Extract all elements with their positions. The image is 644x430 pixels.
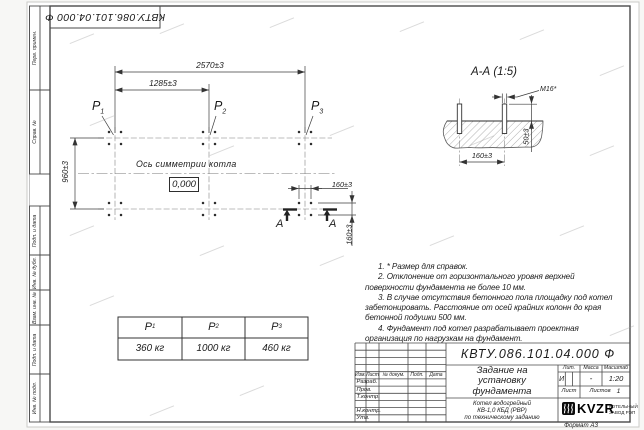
margin-label-inv-podl: Инв. № подл. <box>30 374 41 422</box>
sheets-label: Листов <box>590 389 611 395</box>
note-1: 1. * Размер для справок. <box>365 262 621 272</box>
dim-bolt-y-label: 160±3 <box>345 217 352 253</box>
margin-label-text: Инв. № подл. <box>32 382 38 414</box>
table-header-sub: 1 <box>152 324 155 330</box>
row-label-tkontr: Т.контр. <box>357 395 380 401</box>
notes-block: 1. * Размер для справок. 2. Отклонение о… <box>365 262 621 344</box>
dim-half-label: 1285±3 <box>141 79 185 87</box>
section-letter-right: А <box>329 219 336 230</box>
symmetry-axis-label: Ось симметрии котла <box>136 160 237 169</box>
margin-label-text: Подп. и дата <box>32 214 38 246</box>
col-header-list: Лист <box>366 372 379 379</box>
sheets-value: 1 <box>617 389 621 396</box>
col-header-data: Дата <box>426 372 446 379</box>
load-label-p1: P1 <box>92 100 104 116</box>
mass-header: Масса <box>580 365 602 372</box>
col-header-ndoc: № докум. <box>379 372 408 379</box>
margin-label-text: Подп. и дата <box>32 333 38 365</box>
note-3: 3. В случае отсутствия бетонного пола пл… <box>365 293 621 324</box>
margin-label-text: Взам. инв. № <box>32 291 38 323</box>
row-label-prov: Пров. <box>357 388 372 394</box>
load-label-p3: P3 <box>311 100 323 116</box>
table-header-sub: 2 <box>215 324 218 330</box>
margin-label-text: Инв. № дубл. <box>32 257 38 289</box>
load-table-value-p3: 460 кг <box>245 338 308 360</box>
row-label-razrab: Разраб. <box>357 380 378 386</box>
load-table-value-p1: 360 кг <box>118 338 182 360</box>
margin-label-text: Перв. примен. <box>32 31 38 65</box>
load-table-header-p2: P2 <box>182 317 245 338</box>
load-table-header-p3: P3 <box>245 317 308 338</box>
load-label-sub: 3 <box>319 109 323 116</box>
scale-header: Масштаб <box>602 365 630 372</box>
table-header-base: P <box>271 322 278 333</box>
col-header-podp: Подп. <box>408 372 426 379</box>
kvzr-logo-sub1: КОТЕЛЬНЫЙ <box>609 405 638 410</box>
title-line: фундамента <box>473 387 532 398</box>
note-4: 4. Фундамент под котел разрабатывает про… <box>365 324 621 345</box>
margin-label-vzam-inv: Взам. инв. № <box>30 290 41 325</box>
load-label-p2: P2 <box>214 100 226 116</box>
row-label-utv: Утв. <box>357 416 370 422</box>
kvzr-logo-emblem <box>562 402 575 415</box>
drawing-sheet: КВТУ.086.101.04.000 Ф Перв. примен. Спра… <box>0 0 644 430</box>
lit-value: И <box>558 372 565 386</box>
margin-label-text: Справ. № <box>32 120 38 144</box>
dim-bolt-x-label: 160±3 <box>324 181 360 188</box>
load-table-value-p2: 1000 кг <box>182 338 245 360</box>
table-header-sub: 3 <box>278 324 281 330</box>
row-label-nkontr: Н.контр. <box>357 409 382 415</box>
margin-label-podp-data-1: Подп. и дата <box>30 206 41 255</box>
section-height-label: 50±3 <box>522 119 529 155</box>
scale-value: 1:20 <box>602 372 630 386</box>
title-block-title: Задание на установку фундамента <box>446 365 558 398</box>
col-header-izm: Изм. <box>355 372 366 379</box>
kvzr-logo-sub2: ЗАВОД РЭП <box>609 411 635 416</box>
title-block-doc-number: КВТУ.086.101.04.000 Ф <box>446 343 630 365</box>
doc-number-stamp: КВТУ.086.101.04.000 Ф <box>50 6 160 28</box>
product-line: по техническому заданию <box>464 414 539 421</box>
product-line: КВ-1,0 КБД (РВР) <box>477 407 527 414</box>
margin-label-sprav-no: Справ. № <box>30 90 41 174</box>
load-label-sub: 1 <box>100 109 104 116</box>
section-view-title: А-А (1:5) <box>455 67 533 79</box>
dim-overall-label: 2570±3 <box>188 61 232 69</box>
load-label-sub: 2 <box>222 109 226 116</box>
margin-label-podp-data-2: Подп. и дата <box>30 325 41 374</box>
margin-label-inv-dubl: Инв. № дубл. <box>30 255 41 290</box>
product-line: Котел водогрейный <box>473 400 531 407</box>
level-mark: 0,000 <box>169 177 199 192</box>
mass-value: - <box>580 372 602 386</box>
format-label: Формат А3 <box>546 423 616 430</box>
lit-header: Лит. <box>558 365 580 372</box>
sheet-label: Лист <box>558 386 580 398</box>
margin-label-perv-primen: Перв. примен. <box>30 6 41 90</box>
table-header-base: P <box>145 322 152 333</box>
sheets-cell: Листов 1 <box>580 386 630 398</box>
section-letter-left: А <box>276 219 283 230</box>
load-table-header-p1: P1 <box>118 317 182 338</box>
thread-label: М16* <box>540 86 556 93</box>
section-spacing-label: 160±3 <box>464 152 500 159</box>
note-2: 2. Отклонение от горизонтального уровня … <box>365 272 621 293</box>
dim-depth-label: 960±3 <box>62 154 70 190</box>
title-block-product: Котел водогрейный КВ-1,0 КБД (РВР) по те… <box>446 398 558 422</box>
